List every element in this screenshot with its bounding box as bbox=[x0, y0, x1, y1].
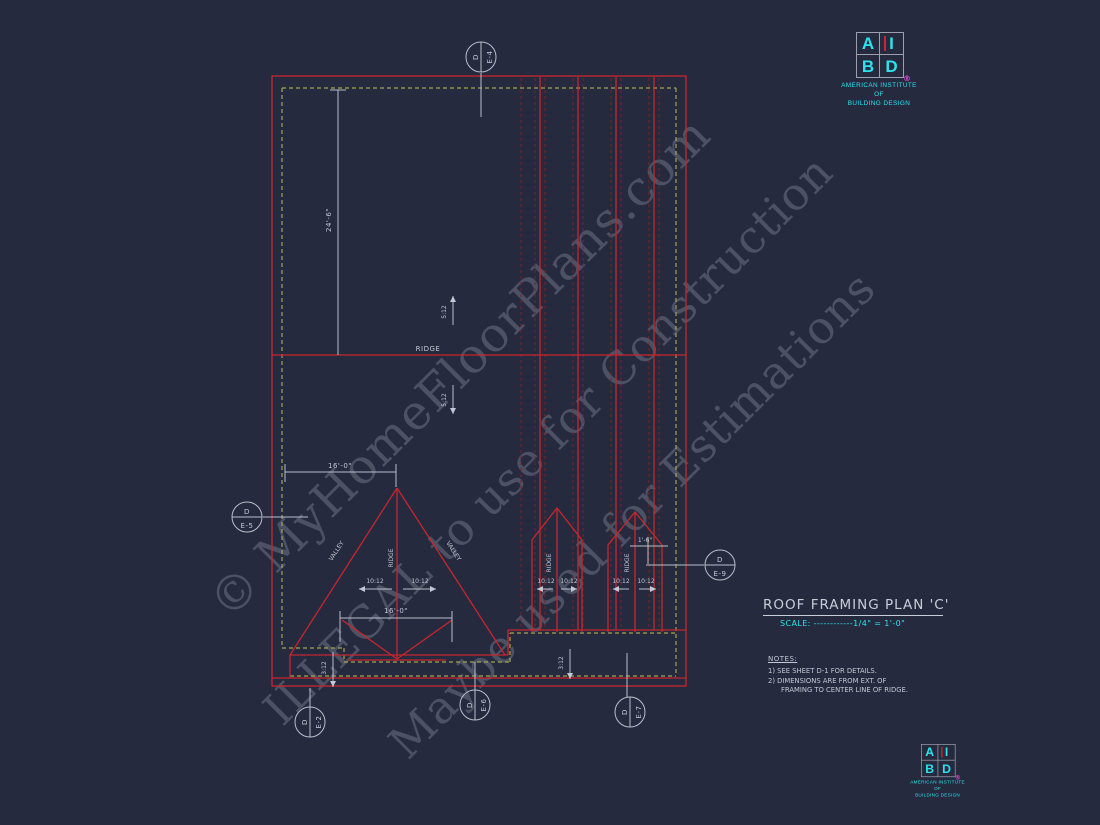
registered-mark: ® bbox=[903, 74, 911, 83]
slope-g2-right-text: 10:12 bbox=[637, 578, 654, 585]
callout-bottom-right-detail: D bbox=[621, 709, 629, 715]
aibd-logo-grid: A I B D ® bbox=[856, 32, 904, 78]
title-block: ROOF FRAMING PLAN 'C' SCALE: -----------… bbox=[763, 597, 943, 628]
callout-left: D E-5 bbox=[232, 502, 262, 532]
logo-letter-a: A bbox=[857, 33, 880, 55]
slope-g2-left-text: 10:12 bbox=[612, 578, 629, 585]
callout-left-detail: D bbox=[244, 508, 250, 516]
slope-g1-left-text: 10:12 bbox=[537, 578, 554, 585]
ridge-gable1-label: RIDGE bbox=[546, 553, 553, 572]
callout-bottom-mid-detail: D bbox=[466, 702, 474, 708]
callout-right-sheet: E-9 bbox=[714, 570, 727, 578]
registered-mark: ® bbox=[955, 774, 961, 780]
valley-left-label: VALLEY bbox=[328, 540, 346, 563]
aibd-logo-grid: A I B D ® bbox=[921, 744, 956, 777]
ridge-main-label: RIDGE bbox=[416, 345, 441, 353]
roof-outline-red bbox=[272, 76, 686, 686]
dim-width-lower-text: 16'-0" bbox=[384, 607, 408, 615]
callout-top-sheet: E-4 bbox=[486, 51, 494, 64]
logo-letter-d: D bbox=[880, 55, 903, 77]
aibd-logo-bottom: A I B D ® AMERICAN INSTITUTE OF BUILDING… bbox=[921, 744, 969, 799]
notes-block: NOTES: 1) SEE SHEET D-1 FOR DETAILS. 2) … bbox=[768, 655, 908, 695]
slope-tri-right-text: 10:12 bbox=[411, 578, 428, 585]
callout-right: D E-9 bbox=[705, 550, 735, 580]
eave-dashed-outline bbox=[282, 88, 676, 676]
aibd-org-text: AMERICAN INSTITUTE OF BUILDING DESIGN bbox=[907, 780, 969, 799]
callout-top: D E-4 bbox=[466, 42, 496, 72]
callout-bottom-left-sheet: E-2 bbox=[315, 716, 323, 729]
dim-gable-text: 1'-6" bbox=[638, 537, 652, 544]
dimension-lines bbox=[263, 73, 704, 707]
logo-letter-b: B bbox=[922, 761, 939, 777]
slope-g1-right-text: 10:12 bbox=[560, 578, 577, 585]
callout-bottom-right: D E-7 bbox=[615, 697, 645, 727]
aibd-logo-top: A I B D ® AMERICAN INSTITUTE OF BUILDING… bbox=[856, 32, 922, 109]
drawing-title: ROOF FRAMING PLAN 'C' bbox=[763, 597, 943, 616]
logo-letter-d: D bbox=[938, 761, 955, 777]
logo-red-bar bbox=[884, 36, 886, 51]
dim-height-text: 24'-6" bbox=[325, 208, 333, 232]
dim-width-upper-text: 16'-0" bbox=[328, 462, 352, 470]
logo-letter-a: A bbox=[922, 745, 939, 761]
valley-right-label: VALLEY bbox=[444, 540, 462, 563]
logo-letter-i: I bbox=[938, 745, 955, 761]
slope-lower-text: 5:12 bbox=[441, 393, 448, 407]
logo-letter-i: I bbox=[880, 33, 903, 55]
note-2b: FRAMING TO CENTER LINE OF RIDGE. bbox=[768, 686, 908, 695]
callout-top-detail: D bbox=[472, 54, 480, 60]
slope-upper-text: 5:12 bbox=[441, 305, 448, 319]
logo-red-bar bbox=[941, 747, 942, 758]
ridge-gable2-label: RIDGE bbox=[624, 553, 631, 572]
callout-right-detail: D bbox=[717, 556, 723, 564]
callout-bottom-mid: D E-6 bbox=[460, 690, 490, 720]
slope-bottom-left-text: 3:12 bbox=[321, 661, 328, 675]
slope-bottom-mid-text: 3:12 bbox=[558, 656, 565, 670]
aibd-org-text: AMERICAN INSTITUTE OF BUILDING DESIGN bbox=[836, 82, 922, 109]
callout-left-sheet: E-5 bbox=[241, 522, 254, 530]
callout-bottom-right-sheet: E-7 bbox=[635, 706, 643, 719]
note-2a: 2) DIMENSIONS ARE FROM EXT. OF bbox=[768, 677, 908, 686]
notes-heading: NOTES: bbox=[768, 655, 908, 664]
callout-bottom-left: D E-2 bbox=[295, 707, 325, 737]
note-1: 1) SEE SHEET D-1 FOR DETAILS. bbox=[768, 667, 908, 676]
callout-bottom-left-detail: D bbox=[301, 719, 309, 725]
slope-tri-left-text: 10:12 bbox=[366, 578, 383, 585]
ridge-triangle-label: RIDGE bbox=[388, 548, 395, 567]
cad-canvas: © MyHomeFloorPlans.com ILLEGAL to use fo… bbox=[0, 0, 1100, 825]
logo-letter-b: B bbox=[857, 55, 880, 77]
roof-plan-drawing: RIDGE RIDGE RIDGE RIDGE VALLEY VALLEY 24… bbox=[0, 0, 1100, 825]
callout-bottom-mid-sheet: E-6 bbox=[480, 699, 488, 712]
drawing-scale: SCALE: ------------1/4" = 1'-0" bbox=[780, 619, 943, 628]
